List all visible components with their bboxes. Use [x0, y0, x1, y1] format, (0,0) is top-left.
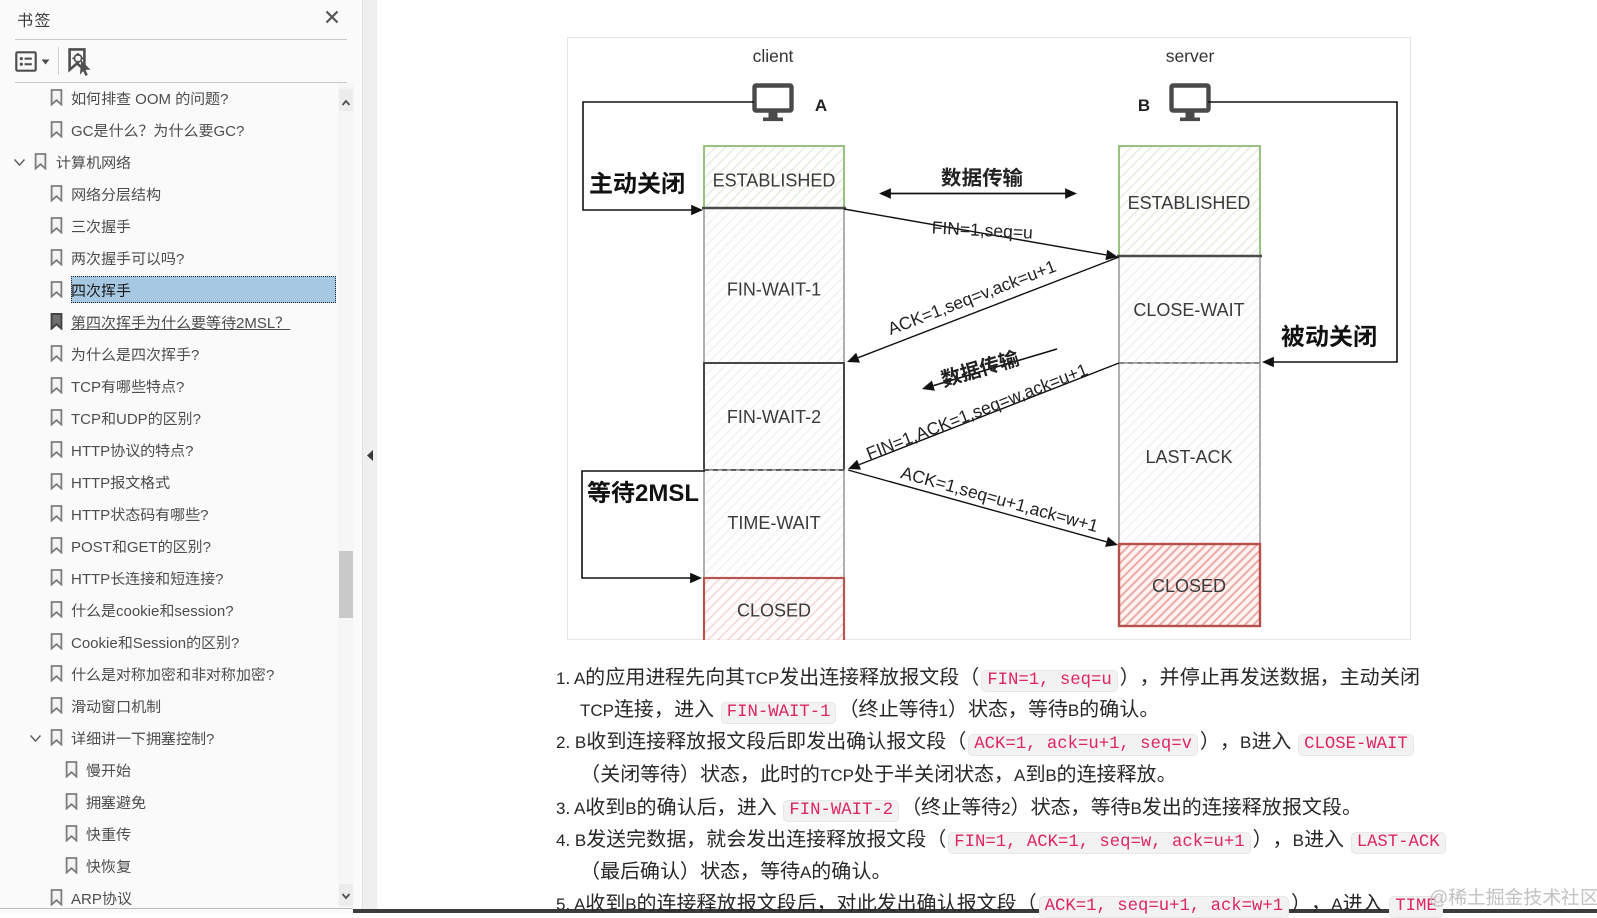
svg-text:client: client: [753, 46, 794, 66]
svg-text:FIN-WAIT-1: FIN-WAIT-1: [727, 280, 821, 300]
svg-text:A: A: [815, 96, 827, 115]
svg-text:TIME-WAIT: TIME-WAIT: [727, 513, 820, 533]
svg-text:主动关闭: 主动关闭: [589, 164, 685, 199]
svg-text:B: B: [1138, 96, 1150, 115]
svg-text:ESTABLISHED: ESTABLISHED: [713, 171, 836, 191]
svg-text:等待2MSL: 等待2MSL: [587, 473, 699, 508]
svg-text:CLOSE-WAIT: CLOSE-WAIT: [1133, 300, 1244, 320]
svg-text:FIN-WAIT-2: FIN-WAIT-2: [727, 407, 821, 427]
svg-text:ESTABLISHED: ESTABLISHED: [1128, 193, 1251, 213]
svg-text:server: server: [1166, 46, 1215, 66]
svg-text:CLOSED: CLOSED: [1152, 576, 1226, 596]
svg-text:数据传输: 数据传输: [941, 161, 1023, 191]
svg-text:LAST-ACK: LAST-ACK: [1145, 447, 1232, 467]
svg-text:CLOSED: CLOSED: [737, 601, 811, 621]
svg-text:被动关闭: 被动关闭: [1281, 317, 1377, 352]
